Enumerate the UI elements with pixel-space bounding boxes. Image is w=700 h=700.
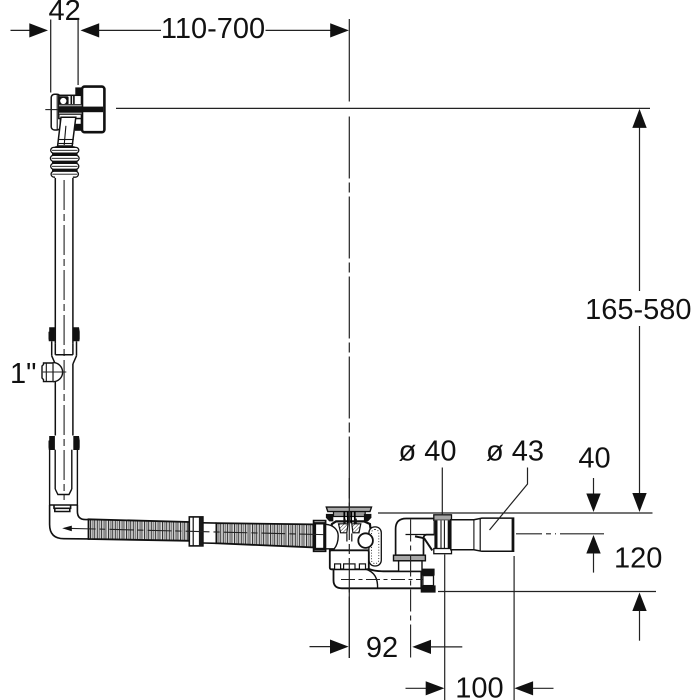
svg-text:92: 92: [366, 632, 398, 664]
svg-text:ø 40: ø 40: [399, 435, 457, 467]
svg-text:165-580: 165-580: [585, 294, 691, 326]
svg-text:1": 1": [10, 358, 36, 390]
svg-text:ø 43: ø 43: [486, 435, 544, 467]
svg-text:40: 40: [578, 442, 610, 474]
svg-text:42: 42: [48, 0, 80, 27]
svg-text:100: 100: [455, 672, 503, 700]
svg-text:110-700: 110-700: [161, 13, 265, 45]
svg-text:120: 120: [614, 542, 662, 574]
